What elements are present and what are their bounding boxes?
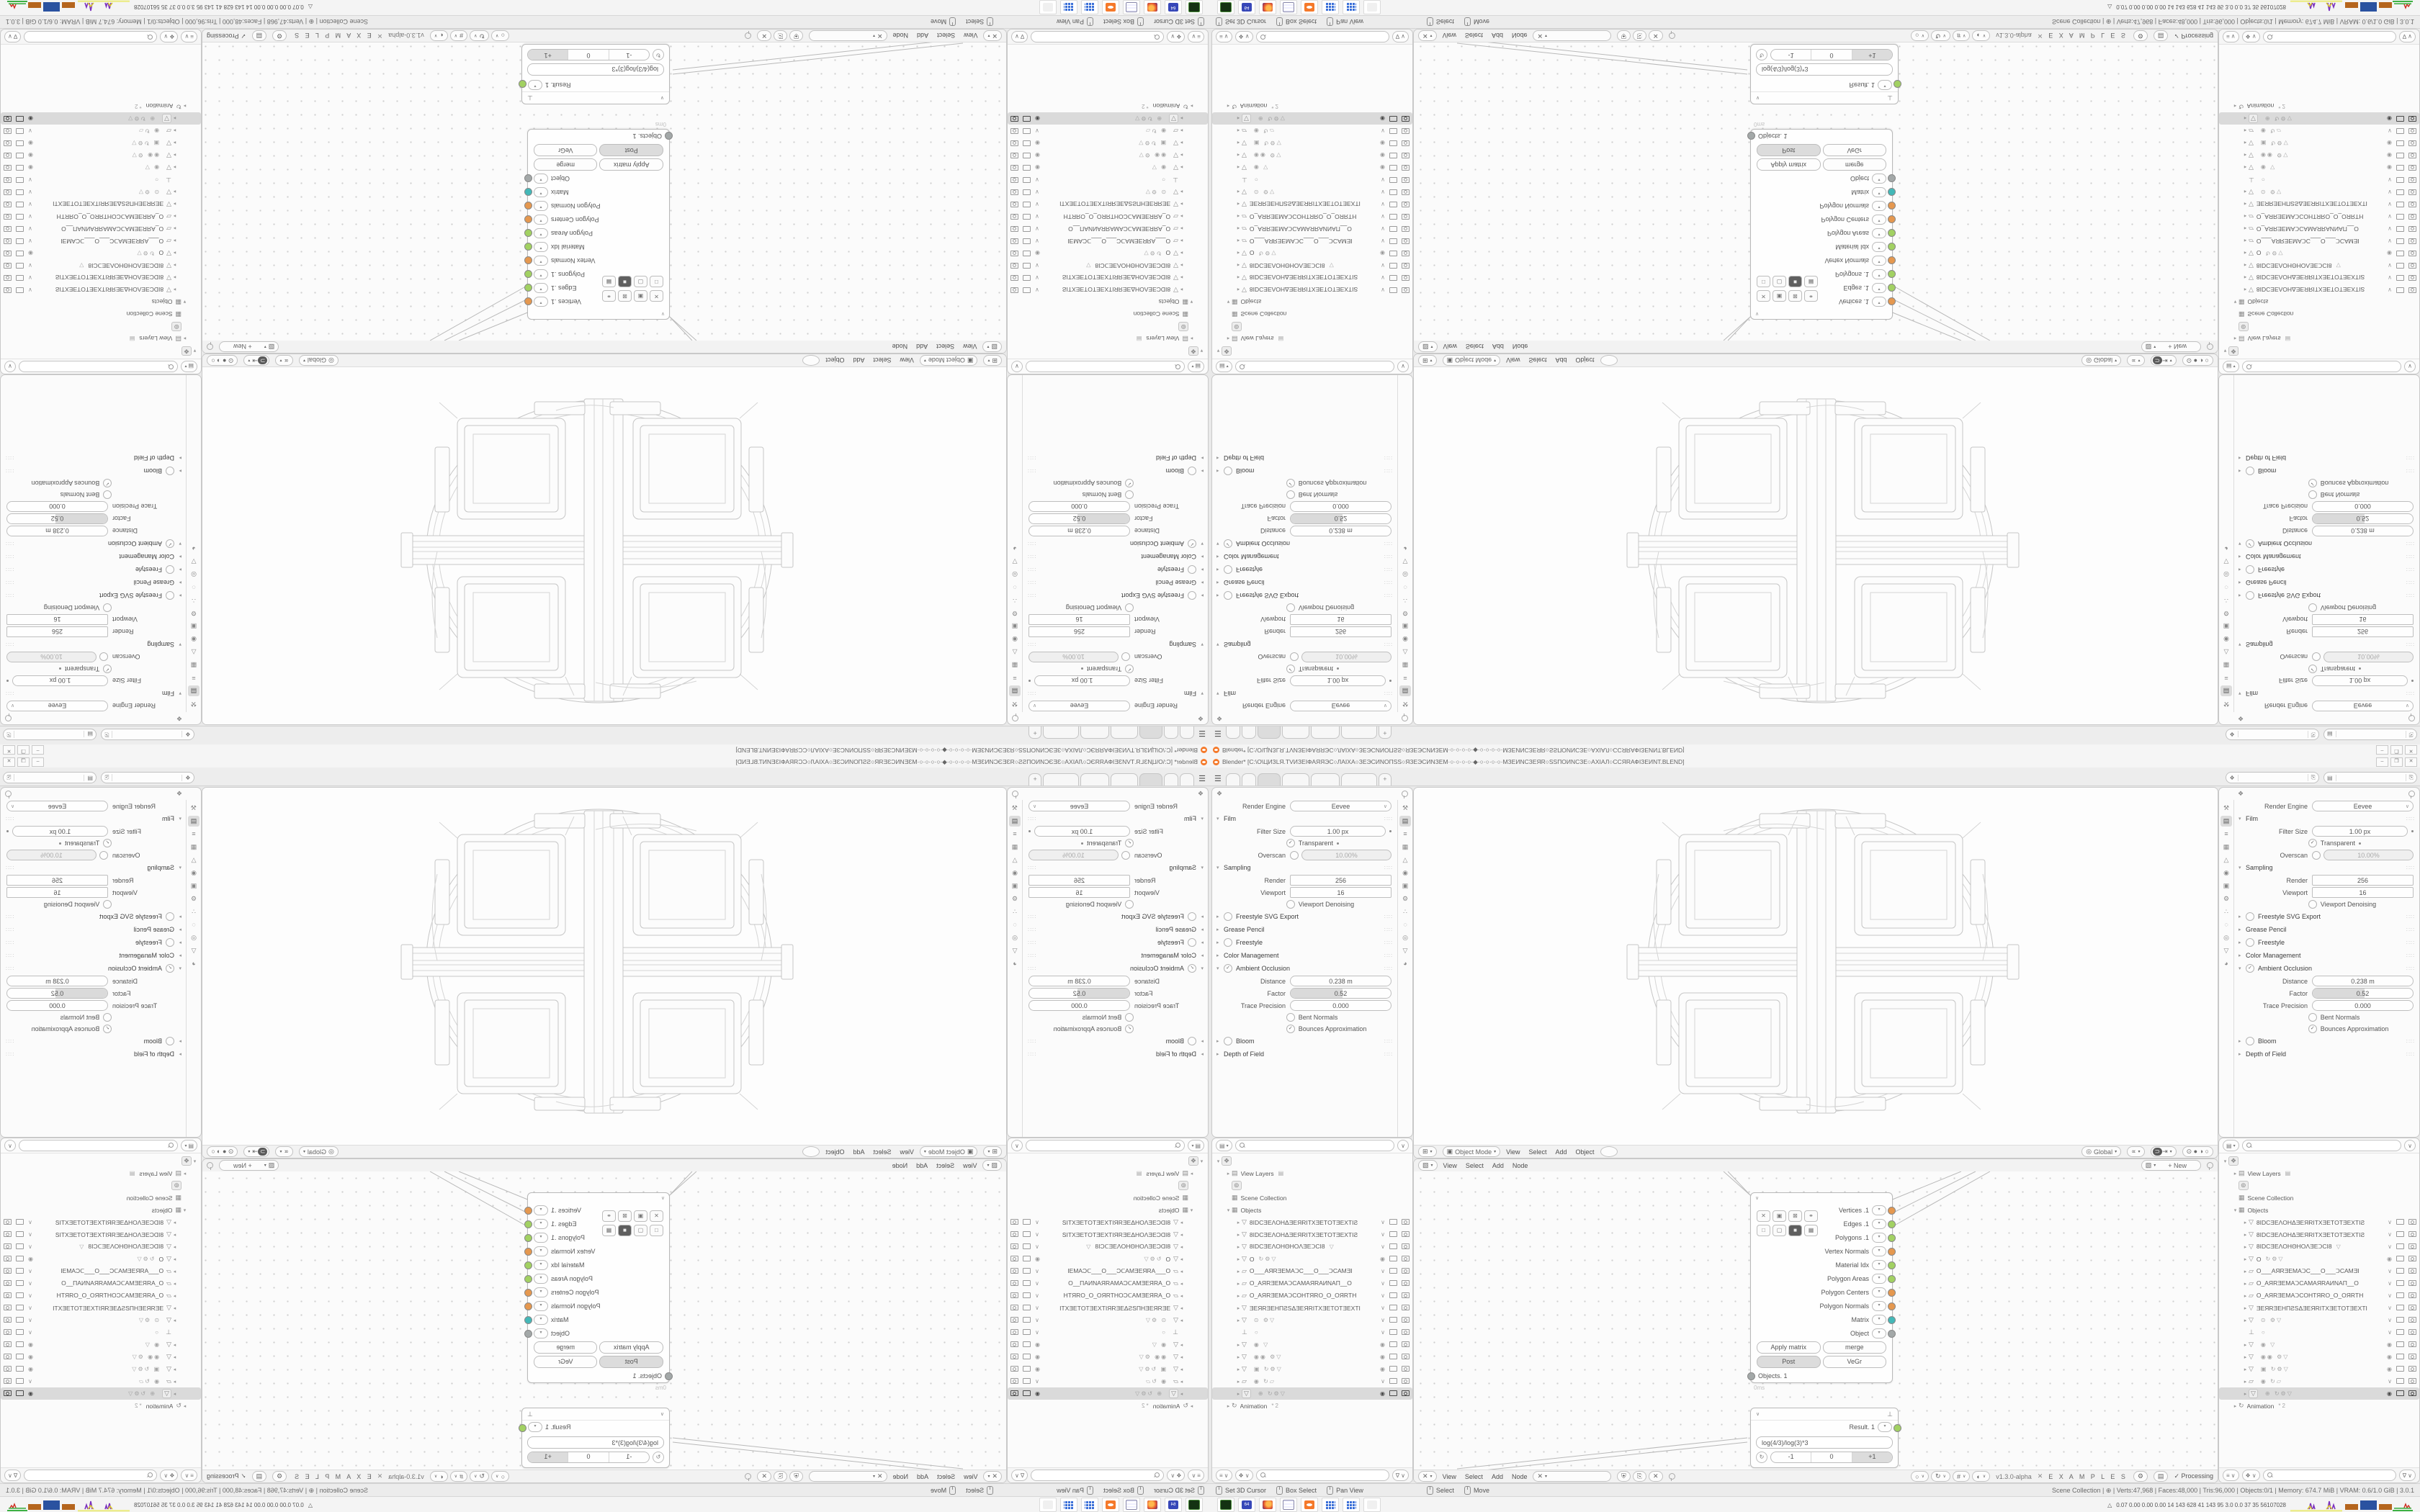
outliner-row[interactable]: ▾▦Objects <box>2219 1204 2419 1216</box>
viewport-hide-icon[interactable] <box>1023 1219 1031 1225</box>
shading-mode-buttons[interactable]: ⊙ ● ◑ ○ <box>207 1146 238 1157</box>
outliner-row[interactable]: ▾❖ <box>1008 345 1208 357</box>
pin-icon[interactable] <box>5 715 12 721</box>
viewport-hide-icon[interactable] <box>1389 1305 1397 1310</box>
output-socket[interactable] <box>524 1316 532 1324</box>
outliner-display-mode-button[interactable]: ▤▾ <box>1188 1140 1204 1151</box>
outliner-row[interactable]: ▸▱◉ ↻▱∨ <box>1008 1375 1208 1387</box>
outliner-search-input[interactable] <box>19 1140 179 1151</box>
objects-input-socket[interactable] <box>1747 1372 1755 1380</box>
selectable-toggle-icon[interactable]: ∨ <box>1381 1305 1385 1311</box>
object-properties-tab-icon[interactable]: ▣ <box>1399 881 1411 891</box>
render-hide-icon[interactable] <box>2408 1366 2416 1372</box>
section-header[interactable]: ▾Ambient Occlusion∷∷ <box>1 962 186 975</box>
transform-orientation-button[interactable]: ◎Global▾ <box>299 1146 339 1157</box>
render-hide-icon[interactable] <box>1010 1378 1018 1384</box>
property-field[interactable]: Eevee∨ <box>2312 801 2414 811</box>
property-field[interactable]: 0.000 <box>1290 1000 1391 1011</box>
viewport-hide-icon[interactable] <box>1389 1243 1397 1249</box>
output-socket[interactable] <box>524 1248 532 1256</box>
workspace-tab[interactable] <box>1258 773 1281 786</box>
selectable-toggle-icon[interactable]: ∨ <box>2388 1219 2392 1225</box>
viewport-menu-add[interactable]: Add <box>1556 1148 1567 1156</box>
viewport-hide-icon[interactable] <box>1023 165 1031 171</box>
output-socket[interactable] <box>1888 1289 1896 1297</box>
dropdown-icon[interactable]: ▾ <box>534 1315 548 1325</box>
selectable-toggle-icon[interactable]: ∨ <box>1035 238 1039 244</box>
mode-selector[interactable]: ▣Object Mode▾ <box>920 1146 978 1157</box>
examples-label[interactable]: E X A M P L E S <box>2048 32 2128 40</box>
menu-hamburger-icon[interactable]: ☰ <box>1214 774 1222 783</box>
output-socket[interactable] <box>524 174 532 182</box>
property-field[interactable]: 0.52 <box>1028 513 1130 524</box>
outliner-footer-button[interactable]: ≡∨ <box>181 31 197 42</box>
viewport-3d[interactable]: ⊞▾ ▣Object Mode▾ ViewSelectAddObject ◎Gl… <box>1413 787 2218 1158</box>
dropdown-icon[interactable]: ▾ <box>1872 270 1886 280</box>
outliner-row[interactable]: ▸▽O↻⚙▽◉ <box>1212 247 1412 259</box>
outliner-row[interactable]: ▸▱O___AЯRƎEMAↃC___O___ↃCAMƎІ∨ <box>1008 235 1208 247</box>
property-field[interactable]: 1.00 px <box>2312 675 2408 686</box>
outliner-row[interactable]: ▸▽ƎEЯRƎEHПƧSΔƎEЯRІТXƎEТOТƎEXТІ∨ <box>1212 1302 1412 1314</box>
eye-visibility-icon[interactable]: ◉ <box>1035 1256 1040 1262</box>
mode-selector[interactable]: ▣Object Mode▾ <box>920 355 978 366</box>
blender-taskbar-icon[interactable] <box>1301 1498 1318 1512</box>
viewport-menu-view[interactable]: View <box>900 357 914 364</box>
close-button[interactable]: ✕ <box>2405 746 2417 755</box>
output-socket[interactable] <box>524 202 532 210</box>
viewport-hide-icon[interactable] <box>2396 202 2404 207</box>
pin-icon[interactable] <box>745 32 751 39</box>
selectable-toggle-icon[interactable]: ∨ <box>1035 1219 1039 1225</box>
header-toggle-button[interactable]: ↻∨ <box>1931 1471 1950 1482</box>
render-hide-icon[interactable] <box>4 1268 12 1274</box>
search-circle-button[interactable] <box>802 1146 820 1157</box>
selectable-toggle-icon[interactable]: ∨ <box>1035 225 1039 232</box>
section-checkbox[interactable] <box>1224 539 1232 548</box>
selectable-toggle-icon[interactable]: ∨ <box>1035 262 1039 269</box>
viewport-menu-view[interactable]: View <box>1506 1148 1520 1156</box>
world-properties-tab-icon[interactable]: ◉ <box>1009 634 1021 644</box>
render-hide-icon[interactable] <box>4 226 12 232</box>
section-checkbox[interactable] <box>166 467 174 475</box>
viewport-hide-icon[interactable] <box>1389 1292 1397 1298</box>
new-node-tree-button[interactable]: ▧▾+ New <box>219 341 279 352</box>
output-socket[interactable] <box>1888 1261 1896 1269</box>
outliner-search-input[interactable] <box>2242 1140 2402 1151</box>
render-hide-icon[interactable] <box>1010 1280 1018 1286</box>
physics-properties-tab-icon[interactable]: ◌ <box>188 919 200 930</box>
pin-icon[interactable] <box>2207 1162 2213 1169</box>
render-hide-icon[interactable] <box>4 251 12 256</box>
outliner-row[interactable]: ▸▽◉◉ ⚙▽◉ <box>1212 1351 1412 1363</box>
selectable-toggle-icon[interactable]: ∨ <box>2388 1378 2392 1385</box>
selectable-toggle-icon[interactable]: ∨ <box>2388 201 2392 207</box>
outliner-row[interactable]: ▸▽8ІDCƎEΛOHΔƎEЯRІТXƎEТOТƎEXТІƧ∨ <box>1 1216 201 1228</box>
outliner-row[interactable]: ▾▦Objects <box>2219 296 2419 308</box>
selectable-toggle-icon[interactable]: ∨ <box>28 238 32 244</box>
render-hide-icon[interactable] <box>1402 287 1410 293</box>
outliner-row[interactable]: ▸▽⊙ ⚙▽∨ <box>1008 186 1208 198</box>
data-properties-tab-icon[interactable]: ▽ <box>2220 945 2232 956</box>
selectable-toggle-icon[interactable]: ∨ <box>2388 176 2392 183</box>
selectable-toggle-icon[interactable]: ∨ <box>1035 1329 1039 1336</box>
tree-action-button[interactable]: ⛨ <box>1617 30 1631 41</box>
scene-properties-tab-icon[interactable]: △ <box>2220 855 2232 865</box>
viewport-hide-icon[interactable] <box>1389 140 1397 146</box>
render-hide-icon[interactable] <box>1402 153 1410 158</box>
outliner-row[interactable]: ▸▽◉ ▽◉ <box>2219 1338 2419 1351</box>
node-editor-menu-view[interactable]: View <box>963 1162 977 1169</box>
sverchok-objects-in-node[interactable]: ∨ ✕▣⊠⚭ □▢■▦ Vertices .1▾Edges .1▾Polygon… <box>527 1192 670 1383</box>
sverchok-objects-in-node[interactable]: ∨ ✕▣⊠⚭ □▢■▦ Vertices .1▾Edges .1▾Polygon… <box>527 129 670 320</box>
world-properties-tab-icon[interactable]: ◉ <box>2220 634 2232 644</box>
outliner-row[interactable]: ▸▽ƎEЯRƎEHПƧSΔƎEЯRІТXƎEТOТƎEXТІ∨ <box>2219 1302 2419 1314</box>
viewlayer-name-field[interactable] <box>14 773 84 783</box>
outliner-row[interactable]: ⊥○∨ <box>2219 1326 2419 1338</box>
outliner-footer-button[interactable]: ❖∨ <box>1235 1470 1253 1481</box>
output-socket[interactable] <box>1888 1302 1896 1310</box>
outliner-row[interactable]: ▸▽8ІDCƎEΛOHΘHOΛƎEↃCІ8▽∨ <box>1008 259 1208 271</box>
section-checkbox[interactable] <box>1224 565 1232 574</box>
search-circle-button[interactable] <box>1600 355 1618 366</box>
outliner-row[interactable]: ▸▱◉ ↻▱∨ <box>2219 125 2419 137</box>
eye-visibility-icon[interactable]: ◉ <box>2387 140 2392 146</box>
outliner-row[interactable]: ▸▽⊕ ↻⚙▽◉ <box>1 112 201 125</box>
section-header[interactable]: ▾Film∷∷ <box>1 687 186 700</box>
property-field[interactable]: Eevee∨ <box>2312 701 2414 711</box>
selectable-toggle-icon[interactable]: ∨ <box>1381 1280 1385 1287</box>
selectable-toggle-icon[interactable]: ∨ <box>1035 1243 1039 1250</box>
notepad-taskbar-icon[interactable] <box>1280 0 1297 14</box>
outliner-row[interactable]: ▸▱O_AЯRƎEMAↃCOHТЯRO_O_OЯRТH∨ <box>1212 1290 1412 1302</box>
viewport-hide-icon[interactable] <box>2396 177 2404 183</box>
tool-properties-tab-icon[interactable]: ⚒ <box>1009 803 1021 814</box>
eye-visibility-icon[interactable]: ◉ <box>1380 152 1385 158</box>
output-properties-tab-icon[interactable]: ≡ <box>1399 829 1411 840</box>
selectable-toggle-icon[interactable]: ∨ <box>1381 201 1385 207</box>
checkbox[interactable] <box>2308 665 2317 673</box>
outliner-search-input[interactable] <box>1026 361 1186 372</box>
render-hide-icon[interactable] <box>4 1256 12 1261</box>
workspace-tab[interactable] <box>1282 773 1309 786</box>
checkbox[interactable] <box>1125 665 1134 673</box>
node-button-merge[interactable]: merge <box>1823 158 1887 171</box>
collapse-icon[interactable]: ∨ <box>1756 95 1760 101</box>
output-socket[interactable] <box>1888 270 1896 278</box>
checkbox[interactable] <box>1290 653 1299 662</box>
output-properties-tab-icon[interactable]: ≡ <box>1009 829 1021 840</box>
node-editor-menu-node[interactable]: Node <box>1512 343 1528 351</box>
calculator-2-taskbar-icon[interactable] <box>1343 0 1360 14</box>
physics-properties-tab-icon[interactable]: ◌ <box>1399 919 1411 930</box>
calculator-taskbar-icon[interactable] <box>1322 1498 1339 1512</box>
render-hide-icon[interactable] <box>4 275 12 281</box>
checkbox[interactable] <box>2308 603 2317 612</box>
workspace-tab[interactable] <box>1043 773 1079 786</box>
blender-taskbar-icon[interactable] <box>1102 1498 1119 1512</box>
calculator-taskbar-icon[interactable] <box>1081 1498 1098 1512</box>
viewport-hide-icon[interactable] <box>1389 1341 1397 1347</box>
physics-properties-tab-icon[interactable]: ◌ <box>1009 919 1021 930</box>
outliner-row[interactable]: ▸▱O___AЯRƎEMAↃC___O___ↃCAMƎІ∨ <box>1 1265 201 1277</box>
selectable-toggle-icon[interactable]: ∨ <box>2388 1305 2392 1311</box>
pin-icon[interactable] <box>1012 715 1018 721</box>
checkbox[interactable] <box>1290 851 1299 860</box>
outliner-row[interactable]: ▦Scene Collection <box>1008 308 1208 320</box>
docs-page-button[interactable]: ▤ <box>252 30 267 41</box>
viewport-canvas[interactable] <box>1414 788 2218 1146</box>
shading-mode-buttons[interactable]: ⊙ ● ◑ ○ <box>2182 1146 2213 1157</box>
outliner-search-input[interactable] <box>2242 361 2402 372</box>
node-editor-menu-node[interactable]: Node <box>893 32 909 40</box>
viewport-hide-icon[interactable] <box>1023 140 1031 146</box>
node-editor[interactable]: ▧▾ ViewSelectAddNode ▧▾+ New ∨ <box>202 1158 1007 1483</box>
examples-label[interactable]: E X A M P L E S <box>292 1473 372 1480</box>
calculator-taskbar-icon[interactable] <box>1081 0 1098 14</box>
outliner-row[interactable]: ▸▽⊕ ↻⚙▽◉ <box>1008 112 1208 125</box>
section-checkbox[interactable] <box>1224 938 1232 947</box>
sverchok-formula-node[interactable]: ∨⊥ Result. 1▾ log(4/3)/log(3)*3 ↻ -10+1 <box>521 44 670 104</box>
dropdown-icon[interactable]: ▾ <box>534 297 548 307</box>
render-hide-icon[interactable] <box>2408 1219 2416 1225</box>
material-properties-tab-icon[interactable]: ◕ <box>1009 543 1021 554</box>
header-toggle-button[interactable]: #∨ <box>1953 1471 1970 1482</box>
viewport-hide-icon[interactable] <box>1023 1231 1031 1237</box>
settings-gear-button[interactable]: ⚙ <box>272 30 287 41</box>
section-checkbox[interactable] <box>1224 912 1232 921</box>
inactive-app-taskbar-icon[interactable] <box>1363 0 1381 14</box>
outliner-row[interactable]: ▸▽8ІDCƎEΛOHΔƎEЯRІТXƎEТOТƎEXТІƧ∨ <box>1008 1216 1208 1228</box>
outliner-row[interactable]: ▾▦Objects <box>1212 1204 1412 1216</box>
outliner-filter-button[interactable]: ∨ <box>4 1140 16 1151</box>
viewport-hide-icon[interactable] <box>1389 1378 1397 1384</box>
render-properties-tab-icon[interactable]: ▤ <box>1399 685 1411 696</box>
viewport-hide-icon[interactable] <box>16 165 24 171</box>
node-editor-menu-node[interactable]: Node <box>1512 1473 1528 1480</box>
property-field[interactable]: 0.52 <box>1290 988 1391 999</box>
copy-icon[interactable]: ⎘ <box>2406 774 2416 781</box>
outliner-row[interactable]: ▸↻Animation*2 <box>1212 100 1412 112</box>
dropdown-icon[interactable]: ▾ <box>1872 284 1886 294</box>
maximize-button[interactable]: ❐ <box>17 757 30 767</box>
viewport-hide-icon[interactable] <box>1389 189 1397 195</box>
tree-action-button[interactable]: ✕ <box>757 30 771 41</box>
node-editor-menu-add[interactable]: Add <box>916 1162 928 1169</box>
render-hide-icon[interactable] <box>2408 177 2416 183</box>
section-checkbox[interactable] <box>1188 565 1196 574</box>
outliner-row[interactable]: ▾▦Objects <box>1212 296 1412 308</box>
section-header[interactable]: ▸Grease Pencil∷∷ <box>1 576 186 589</box>
node-editor-menu-add[interactable]: Add <box>917 32 928 40</box>
viewport-hide-icon[interactable] <box>2396 1329 2404 1335</box>
viewport-menu-object[interactable]: Object <box>825 357 844 364</box>
outliner-row[interactable]: ▸▱O___AЯRƎEMAↃC___O___ↃCAMƎІ∨ <box>2219 1265 2419 1277</box>
result-output-socket[interactable] <box>519 80 526 88</box>
outliner-row[interactable]: ⊥○∨ <box>1008 1326 1208 1338</box>
node-graph-canvas[interactable]: ∨ ✕▣⊠⚭ □▢■▦ Vertices .1▾Edges .1▾Polygon… <box>1414 1171 2218 1470</box>
outliner-row[interactable]: ▾❖ <box>2219 345 2419 357</box>
snap-toggle-button[interactable]: ⊃⇥▾ <box>2151 355 2177 366</box>
render-hide-icon[interactable] <box>1402 189 1410 195</box>
node-editor-menu-node[interactable]: Node <box>893 1473 909 1480</box>
render-hide-icon[interactable] <box>2408 140 2416 146</box>
dropdown-icon[interactable]: ▾ <box>1872 1233 1886 1243</box>
filter-funnel-button[interactable]: ∇∨ <box>1011 31 1028 42</box>
section-checkbox[interactable] <box>166 1037 174 1045</box>
viewport-hide-icon[interactable] <box>2396 1256 2404 1261</box>
eye-visibility-icon[interactable]: ◉ <box>1380 140 1385 146</box>
eye-visibility-icon[interactable]: ◉ <box>1035 152 1040 158</box>
section-checkbox[interactable] <box>1188 467 1196 475</box>
editor-type-button[interactable]: ⊞▾ <box>1418 355 1437 366</box>
node-editor-menu-view[interactable]: View <box>964 1473 977 1480</box>
render-hide-icon[interactable] <box>4 1305 12 1310</box>
viewport-hide-icon[interactable] <box>1389 202 1397 207</box>
output-socket[interactable] <box>524 1289 532 1297</box>
render-hide-icon[interactable] <box>1402 1268 1410 1274</box>
checkbox[interactable] <box>2308 1013 2317 1022</box>
workspace-tab[interactable] <box>1180 773 1194 786</box>
node-editor-menu-add[interactable]: Add <box>1492 343 1504 351</box>
particles-properties-tab-icon[interactable]: ∴ <box>2220 906 2232 917</box>
viewport-3d[interactable]: ⊞▾ ▣Object Mode▾ ViewSelectAddObject ◎Gl… <box>202 354 1007 725</box>
render-hide-icon[interactable] <box>2408 1378 2416 1384</box>
render-hide-icon[interactable] <box>1402 263 1410 269</box>
outliner-row[interactable]: ▾▦Objects <box>1 1204 201 1216</box>
render-hide-icon[interactable] <box>4 153 12 158</box>
render-hide-icon[interactable] <box>1010 226 1018 232</box>
outliner-row[interactable]: ▸▱O_AЯRƎEMAↃCOHТЯRO_O_OЯRТH∨ <box>2219 210 2419 222</box>
outliner-footer-button[interactable]: ❖∨ <box>160 1470 178 1481</box>
outliner-row[interactable]: ▾▦Objects <box>1 296 201 308</box>
tool-properties-tab-icon[interactable]: ⚒ <box>188 803 200 814</box>
property-field-disabled[interactable]: 10.00% <box>2323 850 2414 860</box>
output-socket[interactable] <box>1888 1220 1896 1228</box>
render-hide-icon[interactable] <box>4 128 12 134</box>
output-socket[interactable] <box>524 1207 532 1215</box>
selectable-toggle-icon[interactable]: ∨ <box>28 201 32 207</box>
selectable-toggle-icon[interactable]: ∨ <box>28 287 32 293</box>
section-header[interactable]: ▸Depth of Field∷∷ <box>1 1048 186 1061</box>
outliner-footer-button[interactable]: ≡∨ <box>2223 1470 2239 1481</box>
eye-visibility-icon[interactable]: ◉ <box>1035 1366 1040 1372</box>
checkbox[interactable] <box>2308 490 2317 499</box>
formula-input-field[interactable]: log(4/3)/log(3)*3 <box>1756 63 1893 76</box>
viewport-hide-icon[interactable] <box>2396 1219 2404 1225</box>
checkbox[interactable] <box>1125 603 1134 612</box>
outliner-row[interactable]: ⊚ <box>1 320 201 333</box>
render-hide-icon[interactable] <box>4 1243 12 1249</box>
selectable-toggle-icon[interactable]: ∨ <box>2388 1243 2392 1250</box>
checkbox[interactable] <box>1121 851 1130 860</box>
property-field[interactable]: 1.00 px <box>1290 826 1386 837</box>
view-layer-properties-tab-icon[interactable]: ▦ <box>1399 842 1411 852</box>
viewport-hide-icon[interactable] <box>16 1305 24 1310</box>
outliner-row[interactable]: ▸▽8ІDCƎEΛOHΔƎEЯRІТXƎEТOТƎEXТІƧ∨ <box>1212 1216 1412 1228</box>
dropdown-icon[interactable]: ▾ <box>1872 297 1886 307</box>
viewport-hide-icon[interactable] <box>16 1317 24 1323</box>
section-checkbox[interactable] <box>166 565 174 574</box>
render-hide-icon[interactable] <box>1402 1256 1410 1261</box>
viewport-hide-icon[interactable] <box>2396 251 2404 256</box>
selectable-toggle-icon[interactable]: ∨ <box>1381 1243 1385 1250</box>
viewport-hide-icon[interactable] <box>16 116 24 122</box>
maximize-button[interactable]: ❐ <box>2390 746 2403 755</box>
scene-name-field[interactable] <box>2238 773 2308 783</box>
section-header[interactable]: ▸Freestyle SVG Export∷∷ <box>2234 589 2419 602</box>
eye-visibility-icon[interactable]: ◉ <box>1380 1390 1385 1397</box>
property-field[interactable]: 256 <box>1028 626 1130 637</box>
notepad-taskbar-icon[interactable] <box>1123 0 1140 14</box>
modifiers-properties-tab-icon[interactable]: ⚙ <box>1399 608 1411 618</box>
viewport-hide-icon[interactable] <box>16 1280 24 1286</box>
dropdown-icon[interactable]: ▾ <box>1872 1205 1886 1215</box>
settings-gear-button[interactable]: ⚙ <box>272 1471 287 1482</box>
outliner-row[interactable]: ▸▽8ІDCƎEΛOHΔƎEЯRІТXƎEТOТƎEXТІƧ∨ <box>1212 284 1412 296</box>
properties-editor-icon[interactable]: ❖ <box>1198 790 1204 798</box>
tool-properties-tab-icon[interactable]: ⚒ <box>2220 698 2232 709</box>
outliner-row[interactable]: ▸▱O_AЯRƎEMAↃCAMAЯRAИNAП__O∨ <box>1 1277 201 1290</box>
section-header[interactable]: ▸Freestyle SVG Export∷∷ <box>2234 910 2419 923</box>
dropdown-icon[interactable]: ▾ <box>1872 1287 1886 1297</box>
pin-icon[interactable] <box>1402 715 1408 721</box>
dropdown-icon[interactable]: ▾ <box>534 1328 548 1338</box>
section-checkbox[interactable] <box>1188 1037 1196 1045</box>
selectable-toggle-icon[interactable]: ∨ <box>1035 1280 1039 1287</box>
properties-editor-icon[interactable]: ❖ <box>176 714 182 722</box>
outliner-footer-button[interactable]: ❖∨ <box>2242 31 2260 42</box>
filter-funnel-button[interactable]: ∇∨ <box>2399 1470 2416 1481</box>
viewport-hide-icon[interactable] <box>1023 226 1031 232</box>
snap-toggle-button[interactable]: ⊃⇥▾ <box>243 355 269 366</box>
outliner-row[interactable]: ▸▤View Layers▤ <box>1008 1167 1208 1179</box>
gizmo-button[interactable]: ∝▾ <box>2127 355 2144 366</box>
render-hide-icon[interactable] <box>1402 128 1410 134</box>
outliner-row[interactable]: ⊚ <box>2219 1179 2419 1192</box>
render-hide-icon[interactable] <box>1010 202 1018 207</box>
outliner-display-mode-button[interactable]: ▤▾ <box>1216 1140 1232 1151</box>
eye-visibility-icon[interactable]: ◉ <box>1035 140 1040 146</box>
property-field[interactable]: 0.000 <box>6 501 108 512</box>
outliner-row[interactable]: ▸▽ƎEЯRƎEHПƧSΔƎEЯRІТXƎEТOТƎEXТІ∨ <box>1008 1302 1208 1314</box>
outliner-row[interactable]: ▸↻Animation*2 <box>2219 100 2419 112</box>
viewport-hide-icon[interactable] <box>1389 263 1397 269</box>
tool-properties-tab-icon[interactable]: ⚒ <box>2220 803 2232 814</box>
checkbox[interactable] <box>103 490 112 499</box>
viewport-menu-object[interactable]: Object <box>1576 1148 1595 1156</box>
workspace-tab[interactable] <box>1341 726 1377 739</box>
property-field[interactable]: Eevee∨ <box>1028 801 1130 811</box>
dropdown-icon[interactable]: ▾ <box>1872 1315 1886 1325</box>
outliner-row[interactable]: ▸▽◉◉ ⚙▽◉ <box>2219 1351 2419 1363</box>
tree-action-button[interactable]: ⎘ <box>774 1471 787 1482</box>
viewport-hide-icon[interactable] <box>1023 189 1031 195</box>
workspace-tab[interactable] <box>1080 726 1109 739</box>
selectable-toggle-icon[interactable]: ∨ <box>1035 127 1039 134</box>
section-header[interactable]: ▾Ambient Occlusion∷∷ <box>2234 962 2419 975</box>
outliner-row[interactable]: ▸▽◉ ▽◉ <box>1212 161 1412 174</box>
filter-funnel-button[interactable]: ∇∨ <box>4 1470 21 1481</box>
output-properties-tab-icon[interactable]: ≡ <box>188 672 200 683</box>
render-properties-tab-icon[interactable]: ▤ <box>188 816 200 827</box>
title-bar[interactable]: Blender* [C:\O\ЦИЗLЯ.ТVИЗЕІФАЯЯЭС○ЛАІХА○… <box>1210 744 2420 756</box>
editor-type-button[interactable]: ⊞▾ <box>983 355 1002 366</box>
formula-input-field[interactable]: log(4/3)/log(3)*3 <box>527 1436 664 1449</box>
scene-properties-tab-icon[interactable]: △ <box>1399 855 1411 865</box>
selectable-toggle-icon[interactable]: ∨ <box>28 1292 32 1299</box>
outliner-row[interactable]: ▸▽▣ ↻⚙▽◉ <box>2219 1363 2419 1375</box>
selectable-toggle-icon[interactable]: ∨ <box>28 274 32 281</box>
